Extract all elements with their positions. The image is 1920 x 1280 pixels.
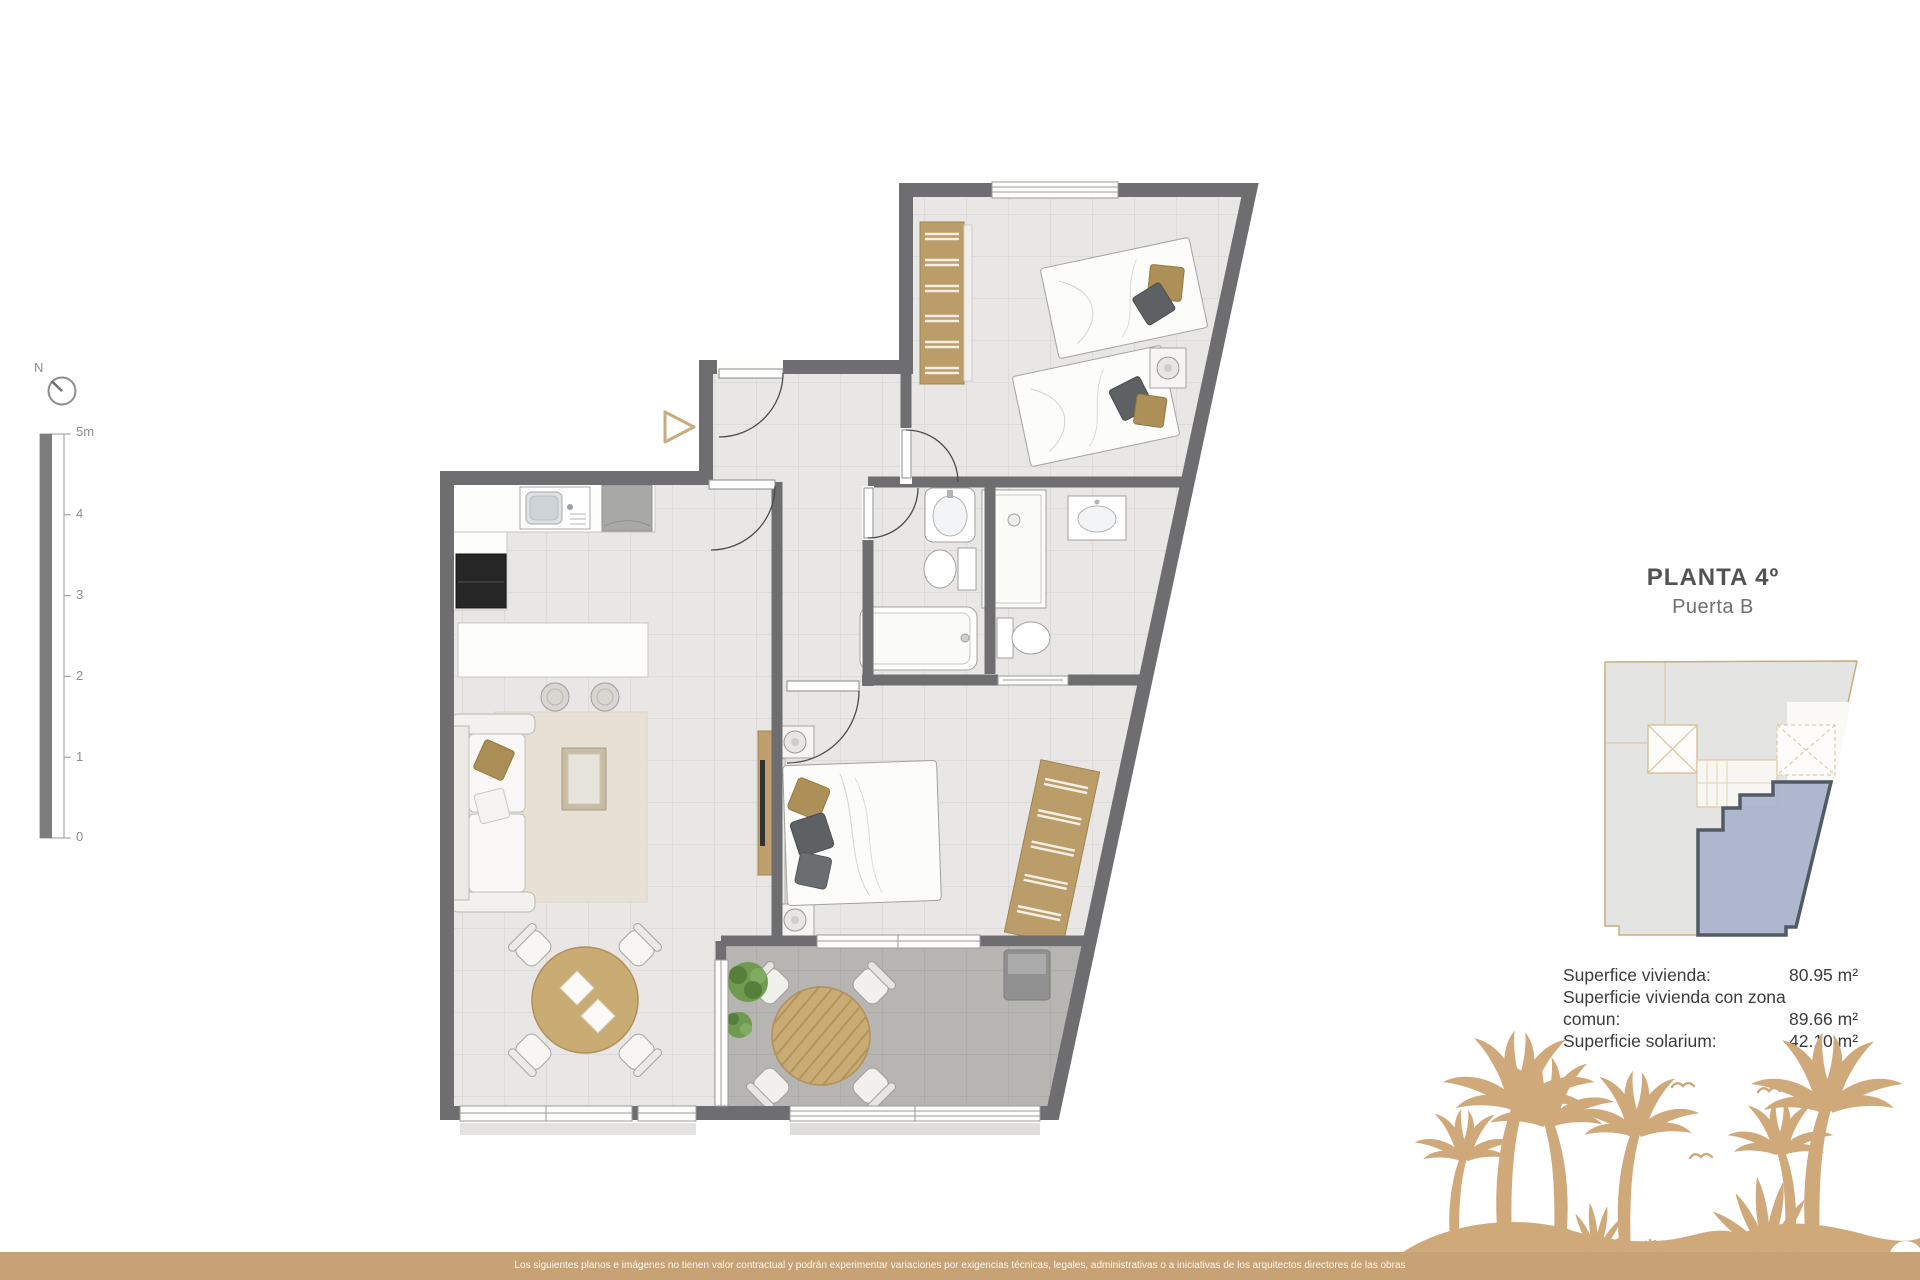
- page-subtitle: Puerta B: [1563, 596, 1863, 619]
- kitchen-island: [458, 623, 648, 677]
- key-plan: [1595, 640, 1905, 950]
- toilet: [958, 548, 976, 590]
- window-sill: [790, 1123, 1040, 1135]
- area-value: 89.66 m²: [1789, 1008, 1883, 1030]
- scale-tick-1: 1: [76, 749, 83, 764]
- scale-bar: 5m 4 3 2 1 0: [30, 430, 150, 850]
- area-label: Superfice vivienda:: [1563, 964, 1789, 986]
- scale-bar-graphic: [30, 430, 100, 842]
- north-compass-icon: N: [20, 350, 90, 420]
- page: { "compass": { "label": "N" }, "scale_ba…: [0, 0, 1920, 1280]
- disclaimer-text: Los siguientes planos e imágenes no tien…: [0, 1252, 1920, 1280]
- scale-tick-4: 4: [76, 506, 83, 521]
- scale-tick-3: 3: [76, 587, 83, 602]
- dining-table: [532, 947, 638, 1053]
- area-row: Superficie vivienda con zona comun: 89.6…: [1563, 986, 1883, 1030]
- north-label: N: [34, 360, 43, 375]
- scale-tick-2: 2: [76, 668, 83, 683]
- bar-stool: [591, 683, 619, 711]
- toilet: [997, 618, 1013, 658]
- page-title: PLANTA 4º: [1563, 564, 1863, 592]
- scale-tick-0: 0: [76, 829, 83, 844]
- floor-plan: [420, 130, 1280, 1140]
- bar-stool: [541, 683, 569, 711]
- area-label: Superficie vivienda con zona comun:: [1563, 986, 1789, 1030]
- wardrobe: [920, 222, 964, 384]
- palm-beach-graphic: [1400, 1030, 1920, 1280]
- entrance-marker-icon: [665, 412, 694, 442]
- tv: [760, 760, 765, 846]
- scale-tick-5m: 5m: [76, 424, 94, 439]
- area-row: Superfice vivienda: 80.95 m²: [1563, 964, 1883, 986]
- double-bed: [783, 760, 942, 905]
- area-value: 80.95 m²: [1789, 964, 1883, 986]
- window-sill: [460, 1123, 696, 1135]
